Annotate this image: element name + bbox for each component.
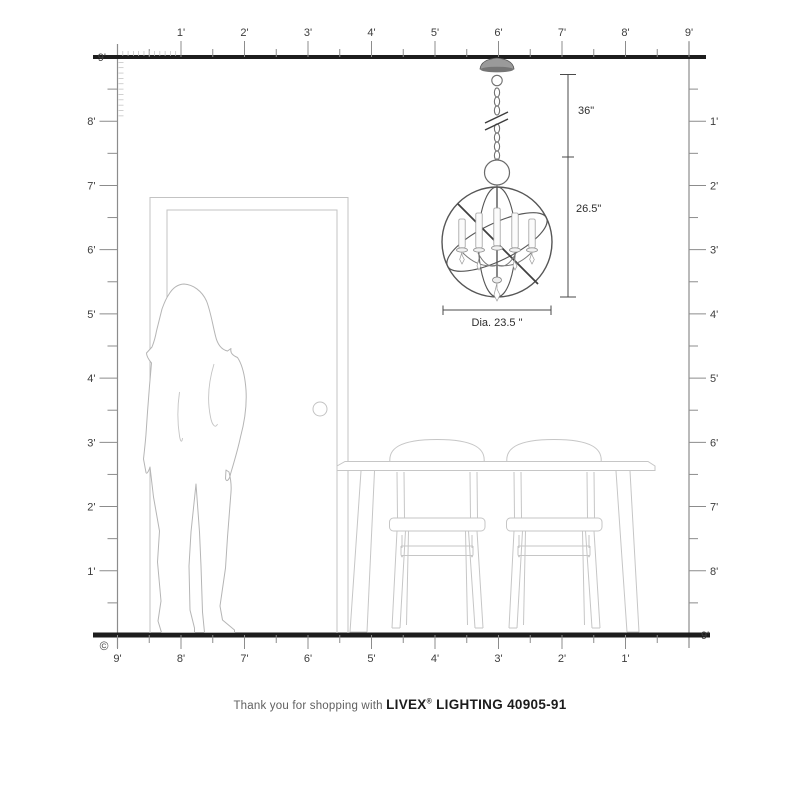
ruler-label: 1' [87,566,95,578]
ruler-label: 7' [710,502,718,514]
chair-backrest [507,440,601,464]
candle [529,219,535,248]
ruler-label: 6' [494,27,502,39]
person-silhouette [144,284,247,633]
ruler-right: 1'2'3'4'5'6'7'8' [689,89,718,603]
ruler-label: 7' [87,180,95,192]
chair-stretcher [401,546,473,556]
candle [476,213,482,248]
chair-dowel-dot [588,556,590,558]
candle [494,208,500,246]
ruler-label: 6' [304,653,312,665]
ruler-corner-label-right: 9' [701,630,709,642]
ruler-label: 4' [367,27,375,39]
ruler-label: 7' [558,27,566,39]
ruler-label: 5' [87,309,95,321]
copyright-symbol: © [100,639,109,653]
chair-stretcher [518,546,590,556]
canopy-rim [481,67,514,73]
ruler-label: 8' [177,653,185,665]
table-leg-left [350,471,375,632]
ruler-label: 9' [685,27,693,39]
ruler-top: 1'2'3'4'5'6'7'8'9' [123,27,693,57]
ruler-label: 2' [710,180,718,192]
registered-mark: ® [427,699,432,706]
ruler-label: 3' [494,653,502,665]
ruler-corner-label-left: 9' [98,52,106,64]
chair-back-posts [397,472,478,518]
ruler-label: 1' [710,116,718,128]
ruler-label: 1' [621,653,629,665]
table-leg-right [616,471,639,632]
ruler-label: 5' [710,373,718,385]
ruler-label: 4' [431,653,439,665]
ball-finial [485,160,510,185]
ruler-label: 4' [710,309,718,321]
chair-back-posts [514,472,595,518]
candle [459,219,465,248]
ruler-label: 6' [710,437,718,449]
chain-loop [492,75,502,85]
ruler-label: 5' [431,27,439,39]
ruler-label: 5' [367,653,375,665]
chair-seat [507,518,603,531]
person-outline [144,284,247,633]
ruler-label: 2' [87,502,95,514]
chair-far-legs [407,531,468,625]
fixture-height-label: 26.5" [576,203,601,215]
chair-backrest [390,440,484,464]
ruler-label: 8' [621,27,629,39]
chain-length-label: 36" [578,105,594,117]
candle [512,213,518,248]
ruler-label: 3' [304,27,312,39]
diameter-label: Dia. 23.5 " [472,317,523,329]
chair-dowel-dot [518,556,520,558]
ruler-label: 6' [87,245,95,257]
ruler-label: 4' [87,373,95,385]
chair-dowel-dot [471,556,473,558]
door-knob [313,402,327,416]
ruler-label: 7' [240,653,248,665]
dimension-lines [443,75,576,316]
footer-thankyou-text: Thank you for shopping with [233,700,382,712]
ruler-bottom: 9'8'7'6'5'4'3'2'1' [113,635,657,665]
chair-seat [390,518,486,531]
ruler-label: 3' [710,245,718,257]
dimension-diagram-page: { "rulers": { "top": { "labels": ["1'","… [0,0,800,800]
ruler-label: 2' [558,653,566,665]
ruler-label: 1' [177,27,185,39]
model-number: LIGHTING 40905-91 [436,697,566,712]
bottom-finial [493,277,502,283]
ruler-label: 8' [87,116,95,128]
ruler-label: 8' [710,566,718,578]
footer: Thank you for shopping with LIVEX® LIGHT… [0,697,800,712]
chair-dowel-dot [401,556,403,558]
ruler-label: 9' [113,653,121,665]
ruler-label: 3' [87,437,95,449]
brand-name: LIVEX® LIGHTING 40905-91 [386,697,566,712]
chandelier-illustration [439,58,554,301]
chair-far-legs [524,531,585,625]
ruler-label: 2' [240,27,248,39]
tabletop [337,462,655,471]
room-scale-diagram: 1'2'3'4'5'6'7'8'9' 8'7'6'5'4'3'2'1' 1'2'… [0,0,800,800]
